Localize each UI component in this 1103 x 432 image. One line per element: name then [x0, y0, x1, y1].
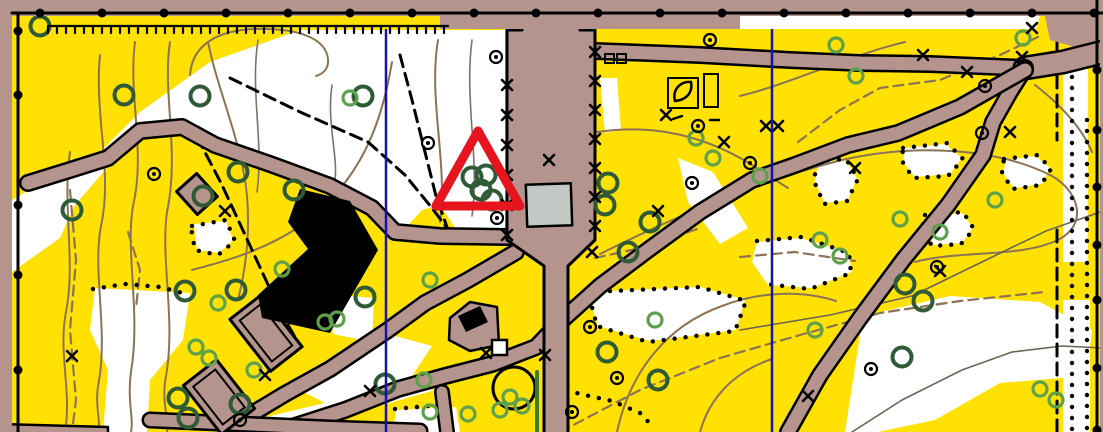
map-viewport[interactable] — [0, 0, 1103, 432]
white-square-symbol — [492, 340, 507, 355]
canopy-gray-square — [526, 183, 572, 227]
orienteering-map[interactable] — [0, 0, 1103, 432]
